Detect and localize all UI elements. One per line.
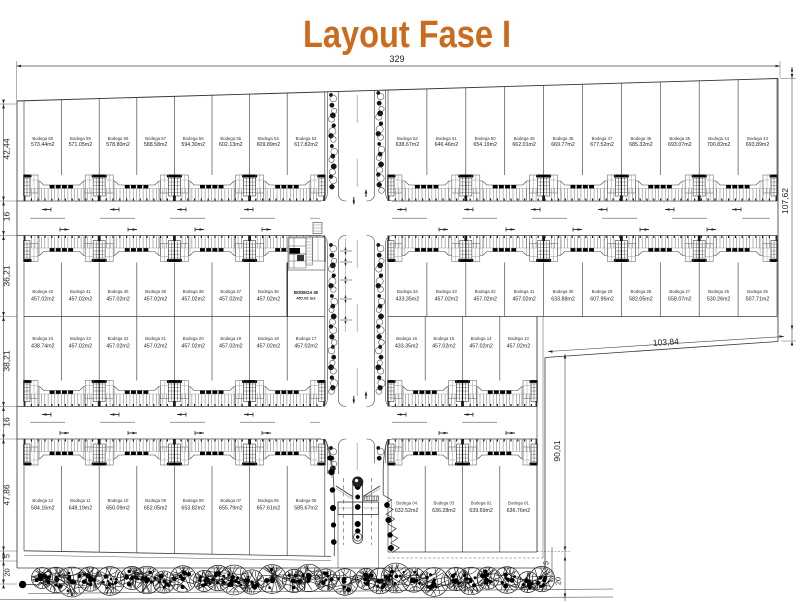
svg-text:Bodega 43: Bodega 43 bbox=[747, 136, 768, 141]
svg-text:Bodega 19: Bodega 19 bbox=[220, 336, 241, 341]
svg-text:Bodega 07: Bodega 07 bbox=[220, 498, 241, 503]
svg-text:457.02m2: 457.02m2 bbox=[473, 297, 497, 303]
svg-text:Bodega 54: Bodega 54 bbox=[258, 136, 279, 141]
svg-text:Bodega 51: Bodega 51 bbox=[436, 136, 457, 141]
svg-text:Bodega 49: Bodega 49 bbox=[514, 136, 535, 141]
svg-text:Bodega 57: Bodega 57 bbox=[145, 136, 166, 141]
svg-text:639.69m2: 639.69m2 bbox=[469, 508, 493, 514]
svg-text:90,01: 90,01 bbox=[552, 440, 562, 462]
svg-text:Bodega 27: Bodega 27 bbox=[669, 289, 690, 294]
svg-text:653.82m2: 653.82m2 bbox=[181, 506, 205, 512]
svg-text:42,44: 42,44 bbox=[2, 138, 12, 160]
svg-text:Bodega 10: Bodega 10 bbox=[108, 498, 129, 503]
svg-text:Bodega 44: Bodega 44 bbox=[708, 136, 729, 141]
svg-text:457.02m2: 457.02m2 bbox=[31, 297, 55, 303]
svg-text:BODEGA 35: BODEGA 35 bbox=[294, 290, 319, 295]
svg-text:654.19m2: 654.19m2 bbox=[473, 142, 497, 148]
svg-text:669.77m2: 669.77m2 bbox=[551, 142, 575, 148]
svg-text:585.67m2: 585.67m2 bbox=[294, 506, 318, 512]
svg-text:Bodega 56: Bodega 56 bbox=[183, 136, 204, 141]
svg-text:Bodega 46: Bodega 46 bbox=[631, 136, 652, 141]
svg-text:Bodega 41: Bodega 41 bbox=[70, 289, 91, 294]
svg-text:457.02m2: 457.02m2 bbox=[106, 297, 130, 303]
svg-text:457.02m2: 457.02m2 bbox=[435, 297, 459, 303]
svg-text:20: 20 bbox=[3, 568, 12, 576]
svg-text:Bodega 53: Bodega 53 bbox=[296, 136, 317, 141]
svg-text:Bodega 11: Bodega 11 bbox=[70, 498, 91, 503]
svg-text:457.02m2: 457.02m2 bbox=[257, 344, 281, 350]
svg-text:617.82m2: 617.82m2 bbox=[294, 142, 318, 148]
svg-text:633.88m2: 633.88m2 bbox=[551, 297, 575, 303]
svg-text:Bodega 31: Bodega 31 bbox=[514, 289, 535, 294]
svg-text:693.89m2: 693.89m2 bbox=[746, 142, 770, 148]
svg-text:578.80m2: 578.80m2 bbox=[106, 142, 130, 148]
svg-text:433.35m2: 433.35m2 bbox=[396, 297, 420, 303]
svg-text:594.30m2: 594.30m2 bbox=[181, 142, 205, 148]
svg-text:Bodega 25: Bodega 25 bbox=[747, 289, 768, 294]
svg-text:433.35m2: 433.35m2 bbox=[395, 344, 419, 350]
svg-text:648.19m2: 648.19m2 bbox=[69, 506, 93, 512]
svg-text:Bodega 42: Bodega 42 bbox=[32, 289, 53, 294]
svg-text:Bodega 24: Bodega 24 bbox=[32, 336, 53, 341]
svg-text:636.76m2: 636.76m2 bbox=[507, 508, 531, 514]
svg-text:Bodega 58: Bodega 58 bbox=[108, 136, 129, 141]
svg-text:Bodega 03: Bodega 03 bbox=[434, 501, 455, 506]
svg-text:652.05m2: 652.05m2 bbox=[144, 506, 168, 512]
svg-text:Bodega 12: Bodega 12 bbox=[32, 498, 53, 503]
svg-text:Bodega 39: Bodega 39 bbox=[145, 289, 166, 294]
svg-text:Bodega 36: Bodega 36 bbox=[258, 289, 279, 294]
svg-text:650.09m2: 650.09m2 bbox=[106, 506, 130, 512]
svg-text:457.02m2: 457.02m2 bbox=[294, 344, 318, 350]
svg-text:655.79m2: 655.79m2 bbox=[219, 506, 243, 512]
svg-text:457.02 m2: 457.02 m2 bbox=[296, 296, 316, 301]
svg-text:602.13m2: 602.13m2 bbox=[219, 142, 243, 148]
svg-text:5: 5 bbox=[5, 554, 12, 558]
svg-text:Bodega 02: Bodega 02 bbox=[471, 501, 492, 506]
svg-text:Bodega 04: Bodega 04 bbox=[396, 501, 417, 506]
svg-text:457.02m2: 457.02m2 bbox=[469, 344, 493, 350]
svg-text:457.02m2: 457.02m2 bbox=[219, 297, 243, 303]
svg-text:Bodega 13: Bodega 13 bbox=[508, 336, 529, 341]
svg-text:Bodega 52: Bodega 52 bbox=[397, 136, 418, 141]
svg-text:457.02m2: 457.02m2 bbox=[69, 344, 93, 350]
svg-text:693.07m2: 693.07m2 bbox=[668, 142, 692, 148]
svg-text:457.02m2: 457.02m2 bbox=[144, 344, 168, 350]
svg-text:16: 16 bbox=[2, 417, 12, 427]
svg-text:Bodega 50: Bodega 50 bbox=[475, 136, 496, 141]
svg-text:507.71m2: 507.71m2 bbox=[746, 297, 770, 303]
svg-text:Bodega 38: Bodega 38 bbox=[183, 289, 204, 294]
svg-text:457.02m2: 457.02m2 bbox=[432, 344, 456, 350]
svg-text:36,21: 36,21 bbox=[2, 265, 12, 287]
svg-text:Bodega 18: Bodega 18 bbox=[258, 336, 279, 341]
svg-text:700.82m2: 700.82m2 bbox=[707, 142, 731, 148]
svg-text:Bodega 22: Bodega 22 bbox=[108, 336, 129, 341]
svg-text:677.52m2: 677.52m2 bbox=[590, 142, 614, 148]
svg-text:Bodega 30: Bodega 30 bbox=[553, 289, 574, 294]
svg-text:38,21: 38,21 bbox=[2, 350, 12, 372]
svg-text:609.89m2: 609.89m2 bbox=[257, 142, 281, 148]
svg-text:573.44m2: 573.44m2 bbox=[31, 142, 55, 148]
svg-text:685.32m2: 685.32m2 bbox=[629, 142, 653, 148]
svg-text:Bodega 20: Bodega 20 bbox=[183, 336, 204, 341]
svg-text:457.02m2: 457.02m2 bbox=[69, 297, 93, 303]
svg-text:457.02m2: 457.02m2 bbox=[144, 297, 168, 303]
svg-text:457.02m2: 457.02m2 bbox=[106, 344, 130, 350]
svg-text:657.61m2: 657.61m2 bbox=[257, 506, 281, 512]
svg-text:Bodega 23: Bodega 23 bbox=[70, 336, 91, 341]
svg-text:Bodega 45: Bodega 45 bbox=[669, 136, 690, 141]
svg-text:Bodega 14: Bodega 14 bbox=[471, 336, 492, 341]
svg-text:Bodega 05: Bodega 05 bbox=[296, 498, 317, 503]
svg-text:457.02m2: 457.02m2 bbox=[219, 344, 243, 350]
svg-text:Bodega 47: Bodega 47 bbox=[592, 136, 613, 141]
svg-text:457.02m2: 457.02m2 bbox=[507, 344, 531, 350]
svg-text:457.02m2: 457.02m2 bbox=[257, 297, 281, 303]
svg-text:Bodega 29: Bodega 29 bbox=[592, 289, 613, 294]
svg-text:571.05m2: 571.05m2 bbox=[69, 142, 93, 148]
svg-text:Bodega 16: Bodega 16 bbox=[396, 336, 417, 341]
svg-text:636.28m2: 636.28m2 bbox=[432, 508, 456, 514]
svg-text:457.02m2: 457.02m2 bbox=[181, 344, 205, 350]
svg-text:582.05m2: 582.05m2 bbox=[629, 297, 653, 303]
svg-text:Bodega 17: Bodega 17 bbox=[296, 336, 317, 341]
svg-text:457.02m2: 457.02m2 bbox=[181, 297, 205, 303]
svg-text:Bodega 06: Bodega 06 bbox=[258, 498, 279, 503]
svg-text:638.67m2: 638.67m2 bbox=[396, 142, 420, 148]
svg-text:Bodega 26: Bodega 26 bbox=[708, 289, 729, 294]
svg-text:103,84: 103,84 bbox=[653, 336, 680, 348]
svg-text:Bodega 15: Bodega 15 bbox=[434, 336, 455, 341]
svg-text:Bodega 08: Bodega 08 bbox=[183, 498, 204, 503]
svg-text:584.16m2: 584.16m2 bbox=[31, 506, 55, 512]
svg-text:Bodega 40: Bodega 40 bbox=[108, 289, 129, 294]
svg-text:Bodega 37: Bodega 37 bbox=[220, 289, 241, 294]
svg-text:646.46m2: 646.46m2 bbox=[435, 142, 459, 148]
svg-text:Bodega 59: Bodega 59 bbox=[70, 136, 91, 141]
svg-text:438.74m2: 438.74m2 bbox=[31, 344, 55, 350]
svg-text:632.52m2: 632.52m2 bbox=[395, 508, 419, 514]
svg-text:457.02m2: 457.02m2 bbox=[512, 297, 536, 303]
svg-text:47,86: 47,86 bbox=[2, 484, 12, 506]
svg-text:Bodega 32: Bodega 32 bbox=[475, 289, 496, 294]
svg-text:607.95m2: 607.95m2 bbox=[590, 297, 614, 303]
svg-text:107,62: 107,62 bbox=[780, 188, 790, 214]
svg-text:Bodega 55: Bodega 55 bbox=[220, 136, 241, 141]
svg-text:588.58m2: 588.58m2 bbox=[144, 142, 168, 148]
svg-text:Bodega 48: Bodega 48 bbox=[553, 136, 574, 141]
svg-text:Bodega 01: Bodega 01 bbox=[508, 501, 529, 506]
svg-text:Bodega 21: Bodega 21 bbox=[145, 336, 166, 341]
svg-text:558.07m2: 558.07m2 bbox=[668, 297, 692, 303]
svg-text:Layout Fase I: Layout Fase I bbox=[303, 14, 511, 56]
svg-text:Bodega 33: Bodega 33 bbox=[436, 289, 457, 294]
svg-text:662.01m2: 662.01m2 bbox=[512, 142, 536, 148]
svg-text:Bodega 60: Bodega 60 bbox=[32, 136, 53, 141]
svg-text:Bodega 34: Bodega 34 bbox=[397, 289, 418, 294]
svg-text:Bodega 28: Bodega 28 bbox=[631, 289, 652, 294]
svg-text:16: 16 bbox=[2, 212, 12, 222]
svg-text:5: 5 bbox=[544, 561, 551, 565]
svg-text:530.26m2: 530.26m2 bbox=[707, 297, 731, 303]
svg-text:329: 329 bbox=[389, 54, 404, 64]
svg-text:Bodega 09: Bodega 09 bbox=[145, 498, 166, 503]
